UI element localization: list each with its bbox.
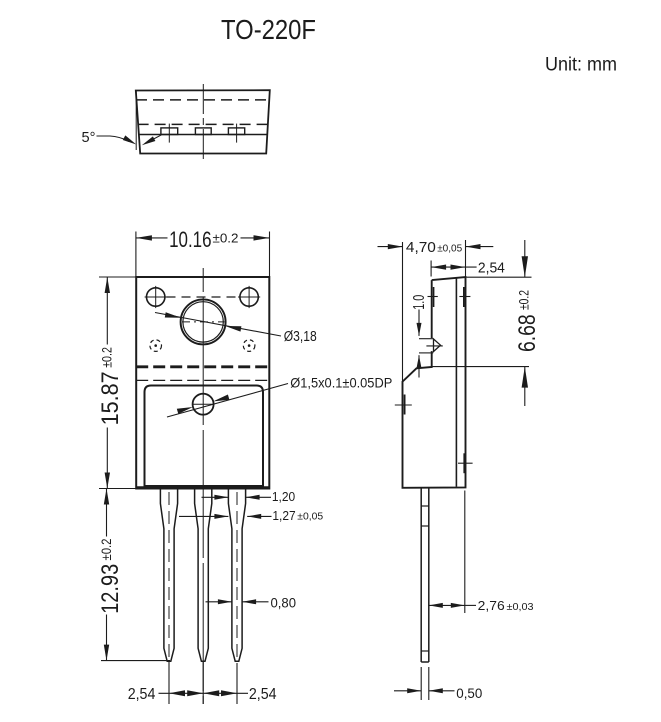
svg-text:2,54: 2,54 [249, 686, 277, 703]
svg-text:TO-220F: TO-220F [221, 14, 316, 45]
svg-text:±0.2: ±0.2 [515, 290, 531, 310]
svg-text:0,80: 0,80 [271, 595, 297, 611]
svg-text:±0.2: ±0.2 [98, 347, 114, 368]
svg-text:±0,03: ±0,03 [507, 602, 534, 613]
svg-text:6.68: 6.68 [514, 314, 541, 352]
svg-text:±0,05: ±0,05 [437, 242, 462, 254]
svg-text:Ø1,5x0.1±0.05DP: Ø1,5x0.1±0.05DP [290, 375, 392, 391]
svg-text:±0.2: ±0.2 [213, 232, 239, 246]
svg-text:1,20: 1,20 [272, 489, 295, 504]
svg-text:±0,05: ±0,05 [297, 512, 323, 523]
svg-text:1,27: 1,27 [272, 508, 295, 523]
svg-text:Ø3,18: Ø3,18 [284, 329, 317, 345]
svg-text:0,50: 0,50 [456, 685, 482, 701]
svg-text:1.0: 1.0 [411, 294, 428, 309]
svg-text:10.16: 10.16 [169, 227, 211, 252]
svg-text:4,70: 4,70 [406, 239, 436, 256]
svg-text:12.93: 12.93 [97, 564, 124, 614]
svg-text:Unit: mm: Unit: mm [545, 55, 617, 76]
svg-text:2,54: 2,54 [478, 260, 505, 277]
svg-text:5°: 5° [82, 130, 96, 146]
svg-text:15.87: 15.87 [97, 371, 124, 425]
svg-text:2,54: 2,54 [128, 686, 156, 703]
svg-text:2,76: 2,76 [478, 598, 505, 613]
svg-text:±0.2: ±0.2 [98, 538, 114, 560]
